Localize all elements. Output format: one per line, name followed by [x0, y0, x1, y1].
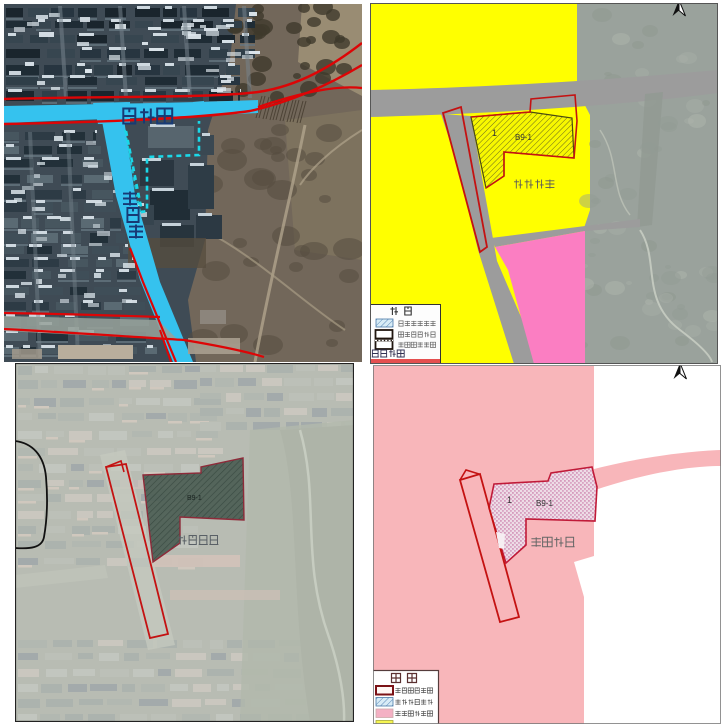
- svg-text:1: 1: [492, 128, 497, 138]
- svg-text:B9-1: B9-1: [515, 133, 532, 142]
- svg-text:B9-1: B9-1: [187, 495, 202, 502]
- svg-text:1: 1: [507, 495, 512, 505]
- svg-text:B9-1: B9-1: [536, 499, 553, 508]
